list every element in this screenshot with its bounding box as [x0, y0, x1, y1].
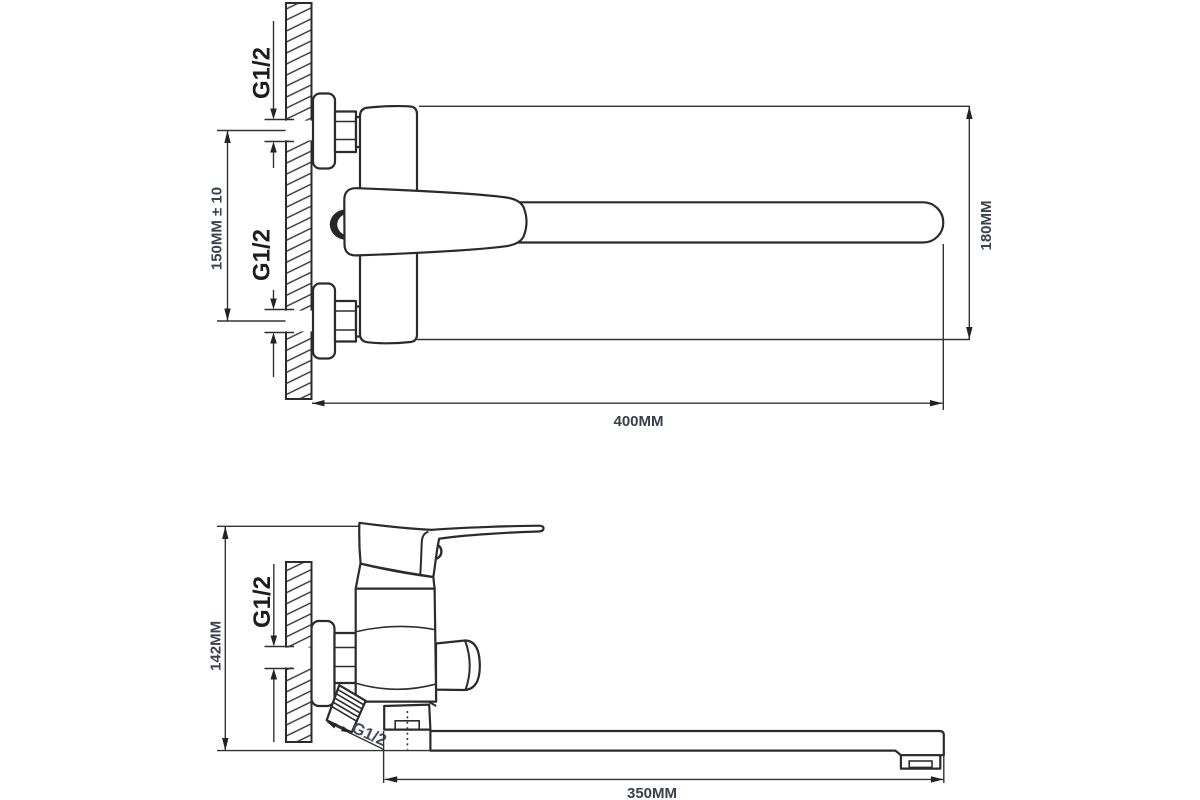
svg-text:180MM: 180MM — [978, 200, 995, 250]
svg-text:G1/2: G1/2 — [249, 576, 276, 628]
svg-text:350MM: 350MM — [627, 785, 677, 800]
svg-text:150MM ± 10: 150MM ± 10 — [209, 187, 226, 270]
svg-text:G1/2: G1/2 — [249, 47, 276, 99]
svg-text:142MM: 142MM — [207, 621, 224, 671]
svg-text:400MM: 400MM — [613, 413, 663, 430]
svg-text:G1/2: G1/2 — [249, 229, 276, 281]
